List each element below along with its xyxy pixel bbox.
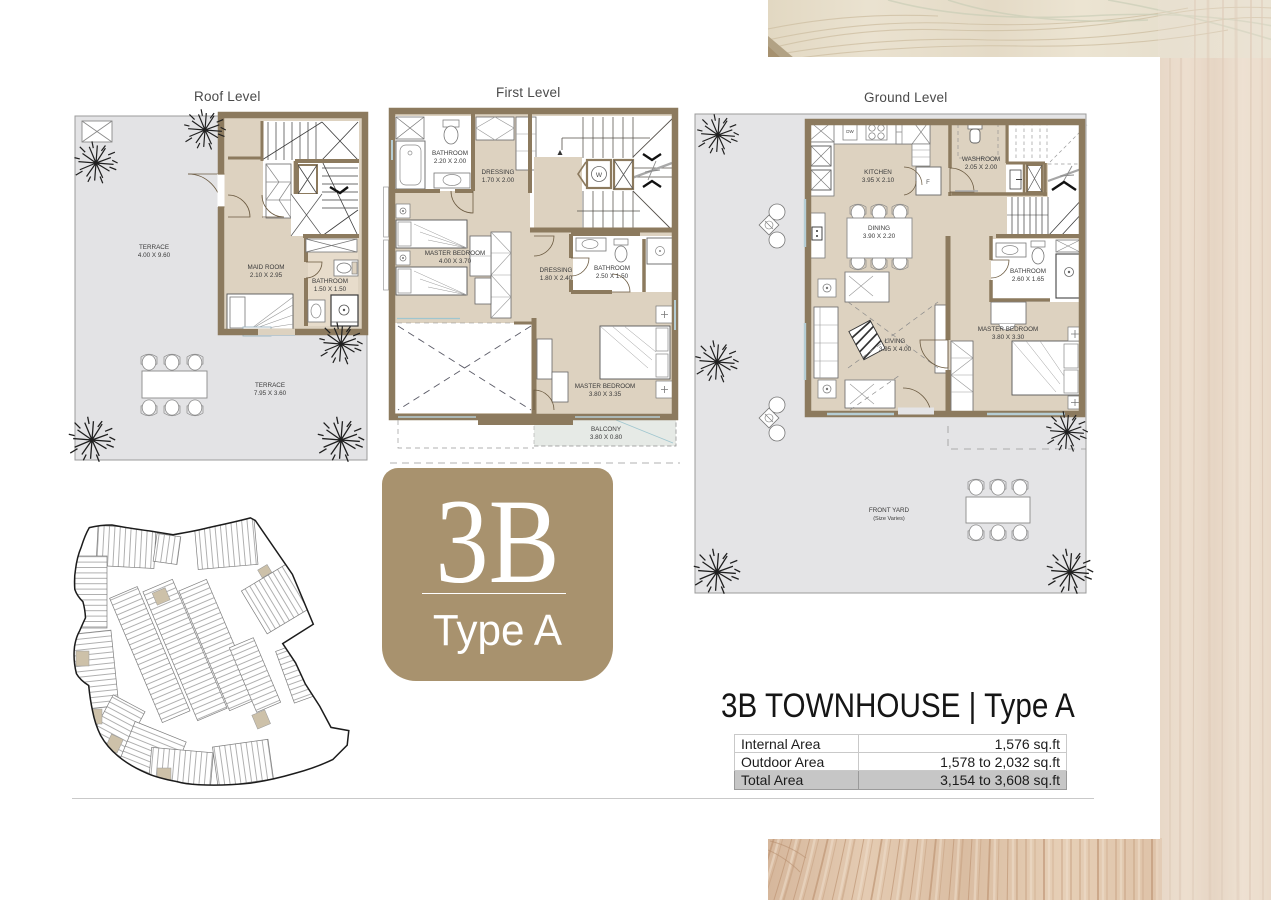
svg-text:MASTER BEDROOM: MASTER BEDROOM [425, 250, 486, 257]
svg-text:3.90 X 2.20: 3.90 X 2.20 [863, 233, 896, 240]
svg-text:1.70 X 2.00: 1.70 X 2.00 [482, 177, 515, 184]
svg-text:DRESSING: DRESSING [482, 169, 515, 176]
svg-text:2.10 X 2.95: 2.10 X 2.95 [250, 272, 283, 279]
svg-text:2.50 X 1.50: 2.50 X 1.50 [596, 273, 629, 280]
svg-text:KITCHEN: KITCHEN [864, 169, 892, 176]
svg-text:2.20 X 2.00: 2.20 X 2.00 [434, 158, 467, 165]
svg-text:BATHROOM: BATHROOM [432, 150, 468, 157]
svg-text:WASHROOM: WASHROOM [962, 156, 1000, 163]
svg-text:MASTER BEDROOM: MASTER BEDROOM [978, 326, 1039, 333]
svg-text:7.95 X 3.60: 7.95 X 3.60 [254, 390, 287, 397]
svg-text:BATHROOM: BATHROOM [312, 278, 348, 285]
svg-text:3.80 X 3.35: 3.80 X 3.35 [589, 391, 622, 398]
svg-text:DW: DW [846, 129, 854, 134]
svg-text:MASTER BEDROOM: MASTER BEDROOM [575, 383, 636, 390]
svg-text:3.95 X 4.00: 3.95 X 4.00 [879, 346, 912, 353]
svg-text:BALCONY: BALCONY [591, 426, 622, 433]
svg-text:3.95 X 2.10: 3.95 X 2.10 [862, 177, 895, 184]
svg-text:3.80 X 0.80: 3.80 X 0.80 [590, 434, 623, 441]
svg-text:W: W [596, 172, 603, 179]
svg-text:TERRACE: TERRACE [255, 382, 285, 389]
svg-text:BATHROOM: BATHROOM [594, 265, 630, 272]
svg-text:2.05 X 2.00: 2.05 X 2.00 [965, 164, 998, 171]
svg-text:1.80 X 2.40: 1.80 X 2.40 [540, 275, 573, 282]
svg-text:BATHROOM: BATHROOM [1010, 268, 1046, 275]
svg-text:1.50 X 1.50: 1.50 X 1.50 [314, 286, 347, 293]
svg-text:F: F [926, 180, 930, 186]
svg-text:(Size Varies): (Size Varies) [873, 516, 905, 522]
svg-text:TERRACE: TERRACE [139, 244, 169, 251]
svg-text:4.00 X 3.70: 4.00 X 3.70 [439, 258, 472, 265]
svg-text:MAID ROOM: MAID ROOM [247, 264, 284, 271]
svg-text:FRONT YARD: FRONT YARD [869, 507, 910, 514]
svg-text:DINING: DINING [868, 225, 890, 232]
svg-text:3.80 X 3.30: 3.80 X 3.30 [992, 334, 1025, 341]
svg-text:4.00 X 9.60: 4.00 X 9.60 [138, 252, 171, 259]
svg-text:DRESSING: DRESSING [540, 267, 573, 274]
svg-text:LIVING: LIVING [885, 338, 906, 345]
svg-text:2.60 X 1.65: 2.60 X 1.65 [1012, 276, 1045, 283]
